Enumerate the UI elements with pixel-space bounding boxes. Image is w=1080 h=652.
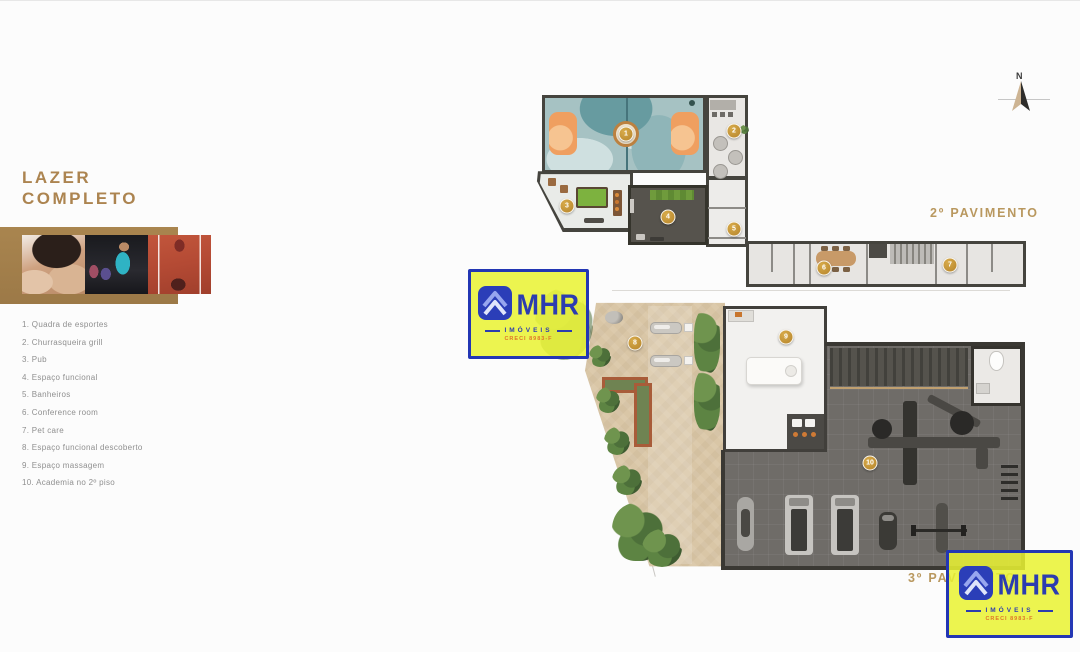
treadmill <box>785 495 813 555</box>
racquet-sport-photo <box>148 235 211 294</box>
stairs <box>830 348 968 386</box>
dash-right <box>557 330 572 332</box>
plan-marker-4: 4 <box>661 210 676 225</box>
bottle <box>615 193 619 197</box>
interior-wall <box>708 207 746 209</box>
pool-table <box>576 187 608 208</box>
interior-wall <box>771 244 773 272</box>
mhr-creci-text: CRECI 8983-F <box>985 616 1033 622</box>
plan-marker-6: 6 <box>817 261 832 276</box>
photo-strip <box>22 235 211 294</box>
goal-area-left <box>549 112 577 155</box>
mhr-house-icon <box>959 566 993 605</box>
plan-marker-3: 3 <box>560 199 575 214</box>
mhr-subtitle-text: IMÓVEIS <box>985 607 1033 614</box>
chair <box>843 267 850 272</box>
plan-marker-5: 5 <box>727 222 742 237</box>
page-title-line2: COMPLETO <box>22 188 138 209</box>
mhr-brand-text: MHR <box>998 571 1061 599</box>
gym-wall <box>721 450 725 570</box>
interior-wall <box>935 244 937 284</box>
plan-marker-9: 9 <box>779 330 794 345</box>
round-table <box>728 150 743 165</box>
treadmill <box>831 495 859 555</box>
dash-left <box>966 610 981 612</box>
barbell-plate <box>961 525 966 536</box>
bottle <box>615 207 619 211</box>
machine-seat <box>976 447 988 469</box>
grill-counter <box>710 100 736 110</box>
amenity-item: 4. Espaço funcional <box>22 374 143 382</box>
plan-marker-10: 10 <box>863 456 878 471</box>
amenity-item: 6. Conference room <box>22 409 143 417</box>
sun-lounger <box>650 355 682 367</box>
spin-bike-handlebar <box>882 515 894 521</box>
page-title: LAZER COMPLETO <box>22 167 138 209</box>
plan-marker-1: 1 <box>619 127 634 142</box>
gym-wall <box>1021 342 1025 570</box>
mhr-creci-text: CRECI 8983-F <box>504 336 552 342</box>
stool <box>720 112 725 117</box>
pub-table <box>560 185 568 193</box>
shrub <box>596 387 620 413</box>
equipment-item <box>636 234 645 240</box>
side-table <box>684 356 693 365</box>
turf-strip <box>650 190 694 200</box>
barbell <box>913 529 967 532</box>
mhr-subtitle-row: IMÓVEIS <box>485 327 571 334</box>
dumbbell-rack <box>1001 462 1018 500</box>
door-opening <box>630 199 634 213</box>
dash-left <box>485 330 500 332</box>
amenity-item: 7. Pet care <box>22 427 143 435</box>
interior-wall <box>793 244 795 284</box>
mhr-subtitle-text: IMÓVEIS <box>504 327 552 334</box>
pub-bench <box>584 218 604 223</box>
elliptical-pedals <box>741 509 750 537</box>
gym-wall <box>825 342 1025 346</box>
plan-marker-8: 8 <box>628 336 643 351</box>
mhr-brand-text: MHR <box>517 291 580 319</box>
interior-wall <box>866 244 868 284</box>
floor2-label: 2º PAVIMENTO <box>930 206 1039 220</box>
wing-closet <box>869 244 887 258</box>
goal-area-right <box>671 112 699 155</box>
towel-stack <box>792 419 802 427</box>
weight-plate <box>950 411 974 435</box>
hedge <box>694 309 720 373</box>
spa-jar <box>802 432 807 437</box>
equipment-item <box>650 237 664 241</box>
counter-item <box>735 312 742 317</box>
sink <box>976 383 990 394</box>
shrub <box>589 345 611 367</box>
massage-photo <box>22 235 85 294</box>
mhr-watermark-bottom: MHR IMÓVEIS CRECI 8983-F <box>946 550 1073 638</box>
pub-table <box>548 178 556 186</box>
leisure-floorplan-page: LAZER COMPLETO 1. Quadra de esportes 2. … <box>0 0 1080 652</box>
side-table <box>684 323 693 332</box>
stool <box>712 112 717 117</box>
barbell-plate <box>911 525 916 536</box>
amenity-item: 10. Academia no 2º piso <box>22 479 143 487</box>
spa-jar <box>793 432 798 437</box>
amenity-item: 3. Pub <box>22 356 143 364</box>
stairs <box>890 244 934 264</box>
interior-wall <box>991 244 993 272</box>
amenity-list: 1. Quadra de esportes 2. Churrasqueira g… <box>22 321 143 497</box>
bottle <box>615 200 619 204</box>
massage-table <box>746 357 802 385</box>
roof-edge-line <box>612 290 1010 291</box>
weight-plate <box>872 419 892 439</box>
spa-jar <box>811 432 816 437</box>
shrub <box>612 465 642 495</box>
amenity-item: 9. Espaço massagem <box>22 462 143 470</box>
amenity-item: 2. Churrasqueira grill <box>22 339 143 347</box>
interior-wall <box>809 244 811 284</box>
mhr-subtitle-row: IMÓVEIS <box>966 607 1052 614</box>
weight-bench <box>936 503 948 553</box>
toilet <box>989 351 1004 371</box>
plan-marker-7: 7 <box>943 258 958 273</box>
planter-bed <box>634 383 652 447</box>
mhr-watermark-top: MHR IMÓVEIS CRECI 8983-F <box>468 269 589 359</box>
shrub <box>604 427 630 455</box>
chair <box>832 267 839 272</box>
stool <box>728 112 733 117</box>
gym-workout-photo <box>85 235 148 294</box>
interior-wall <box>708 237 746 239</box>
amenity-item: 8. Espaço funcional descoberto <box>22 444 143 452</box>
boulder <box>605 311 623 324</box>
round-table <box>713 136 728 151</box>
mhr-house-icon <box>478 286 512 325</box>
amenity-item: 1. Quadra de esportes <box>22 321 143 329</box>
dash-right <box>1038 610 1053 612</box>
page-title-line1: LAZER <box>22 167 138 188</box>
shrub-cluster <box>642 529 682 567</box>
towel-stack <box>805 419 815 427</box>
interior-wall <box>966 244 968 284</box>
hedge <box>694 369 720 431</box>
sun-lounger <box>650 322 682 334</box>
round-table <box>713 164 728 179</box>
court-plant <box>689 100 695 106</box>
north-arrow-icon <box>1008 79 1034 120</box>
plan-marker-2: 2 <box>727 124 742 139</box>
stair-railing <box>830 387 968 389</box>
amenity-item: 5. Banheiros <box>22 391 143 399</box>
